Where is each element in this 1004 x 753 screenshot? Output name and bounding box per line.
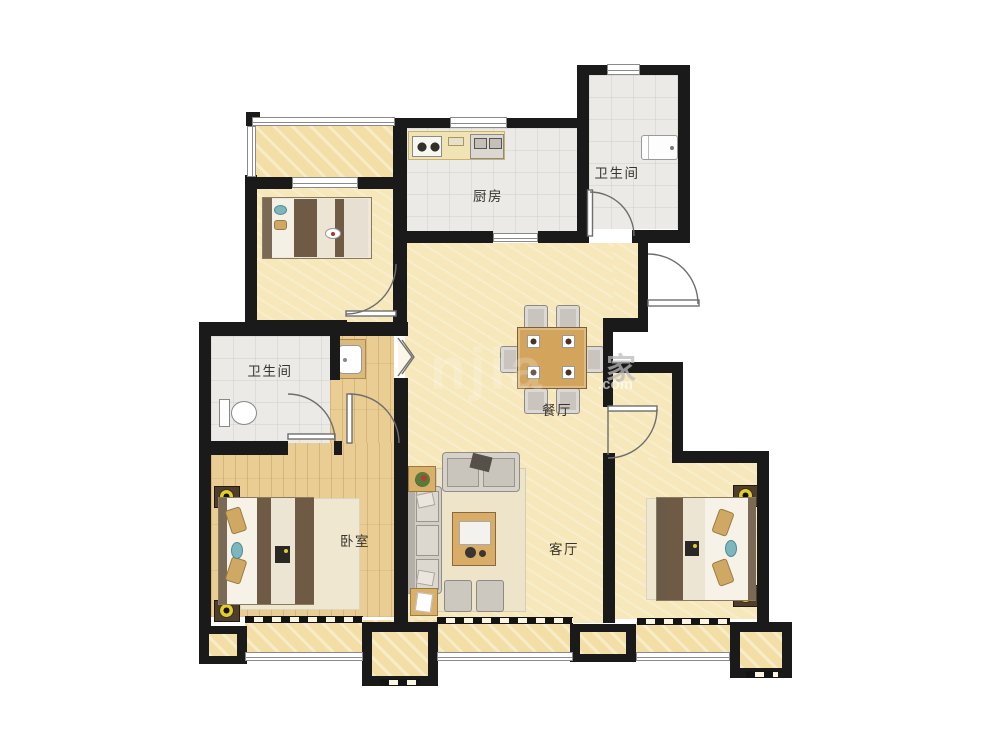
basin-drain — [343, 358, 347, 362]
balcony-bottom-right-floor — [636, 622, 730, 656]
sofa-cushion — [416, 525, 439, 556]
sofa-back — [407, 487, 415, 593]
label-bathroom-left: 卫生间 — [235, 360, 305, 380]
bed-master-remote — [275, 546, 290, 563]
toilet-bowl — [231, 401, 257, 425]
bed-right-headboard — [748, 498, 756, 600]
wall-bath-niche-divider — [330, 336, 340, 380]
entry-strip-floor — [613, 243, 638, 319]
dining-chair-right — [584, 346, 604, 373]
remote-dot — [693, 544, 697, 548]
bed-single-tray-dot — [331, 232, 335, 236]
stove-icon — [412, 136, 442, 157]
bed-right — [656, 497, 756, 601]
teapot-icon — [465, 547, 476, 558]
sink-icon — [470, 134, 504, 159]
bed-right-remote — [685, 541, 699, 556]
door-arc-entry — [648, 254, 698, 304]
teacup-icon — [479, 550, 486, 557]
window-bedroom-balcony — [292, 177, 358, 188]
bed-master-pillow — [225, 506, 248, 535]
ottoman — [444, 580, 472, 612]
ottoman — [476, 580, 504, 612]
vent-icon — [448, 137, 464, 146]
wall-living-right — [603, 453, 615, 623]
wall-bathroom-top-left — [577, 65, 589, 243]
bed-single-tray — [325, 228, 341, 239]
bed-right-teal-pillow — [725, 540, 737, 557]
wall-kitchen-bottom-a — [393, 231, 493, 243]
wall-balcony-divider-b — [358, 177, 395, 189]
plate-icon — [527, 335, 540, 348]
sofa-pillow — [416, 570, 435, 587]
wall-bedroom-master-right — [394, 378, 408, 623]
bed-master-pillow — [225, 556, 248, 585]
wall-bedroom-small-left — [245, 175, 257, 324]
label-dining: 餐厅 — [527, 399, 587, 419]
basin-icon — [338, 345, 362, 374]
wall-corridor-right — [672, 362, 683, 457]
wall-balcony-divider-a — [245, 177, 292, 189]
wall-bathroom-top-right — [678, 65, 690, 243]
plate-icon — [527, 366, 540, 379]
balcony-top-left-floor — [252, 122, 395, 180]
loveseat — [442, 452, 520, 492]
sink-basin-left — [474, 138, 487, 149]
bed-right-pillow — [711, 558, 735, 587]
window-balcony-bottom-3 — [636, 652, 730, 661]
washer-icon — [641, 135, 678, 160]
washer-knob — [670, 146, 674, 150]
window-balcony-bottom-2 — [437, 652, 573, 661]
door-leaf-entry — [648, 300, 699, 306]
window-balcony-bottom-1 — [245, 652, 363, 661]
wall-entry-left — [638, 243, 648, 322]
papers-icon — [415, 592, 433, 613]
pillar-box-left-inner — [209, 634, 237, 656]
dashed-opening-right — [637, 618, 730, 625]
window-kitchen-pass — [493, 233, 538, 242]
window-balcony-top — [252, 117, 395, 126]
remote-dot — [284, 549, 288, 553]
wall-kitchen-top-a — [395, 118, 450, 128]
sofa — [406, 486, 442, 594]
sink-basin-right — [489, 138, 502, 149]
side-table-plant — [408, 466, 436, 492]
bed-single — [262, 197, 372, 259]
wall-kitchen-left — [393, 118, 407, 334]
wall-bath-left-bottom-a — [199, 441, 288, 455]
coffee-tray — [459, 521, 491, 545]
wall-bath-left-top — [199, 322, 408, 336]
wall-entry-step — [603, 318, 648, 332]
window-kitchen-top — [450, 117, 507, 128]
label-living: 客厅 — [534, 538, 594, 558]
bed-master-teal-pillow — [231, 542, 243, 559]
wall-dining-right-upper — [603, 332, 613, 407]
label-kitchen: 厨房 — [458, 185, 518, 205]
dashed-opening-box-center — [380, 679, 420, 686]
plate-icon — [562, 366, 575, 379]
wall-bedroom-right-side — [757, 451, 769, 625]
bed-single-foot — [344, 199, 368, 257]
window-balcony-left — [247, 126, 256, 177]
wall-kitchen-top-b — [507, 118, 577, 128]
pillar-box-center-inner — [372, 632, 428, 676]
bed-right-foot — [657, 498, 665, 600]
bed-single-headboard — [263, 198, 272, 258]
bed-master — [218, 497, 314, 605]
pillar-box-mid-inner — [580, 632, 626, 654]
bed-single-teal-pillow — [274, 205, 287, 215]
kitchen-counter — [408, 131, 505, 160]
wall-bath-left-bottom-b — [334, 441, 342, 455]
wall-left-perimeter — [199, 322, 211, 632]
toilet-tank — [219, 399, 230, 427]
plant-icon — [415, 472, 430, 487]
window-bathroom-top — [607, 64, 640, 75]
bed-single-pillow — [274, 220, 287, 230]
toilet-icon — [219, 398, 259, 428]
corridor-floor — [613, 373, 673, 458]
dashed-opening-living — [437, 617, 573, 624]
coffee-table — [452, 512, 496, 566]
dining-table — [517, 327, 587, 389]
label-bedroom-master: 卧室 — [325, 530, 385, 550]
wall-bathroom-top-a — [577, 65, 607, 75]
dashed-opening-master — [245, 616, 363, 623]
wall-bedroom-right-top — [672, 451, 769, 463]
washer-panel-line — [648, 136, 649, 159]
side-table-books — [410, 588, 438, 616]
floorplan-canvas: 厨房 卫生间 卫生间 餐厅 客厅 卧室 njia 家 .com — [0, 0, 1004, 753]
pillar-box-right-inner — [740, 632, 782, 668]
wall-bathroom-top-bottom — [632, 230, 690, 243]
label-bathroom-top: 卫生间 — [582, 162, 652, 182]
plate-icon — [562, 335, 575, 348]
lamp-icon — [219, 603, 234, 618]
bed-right-pillow — [711, 508, 735, 537]
dashed-opening-box-right — [746, 671, 778, 678]
